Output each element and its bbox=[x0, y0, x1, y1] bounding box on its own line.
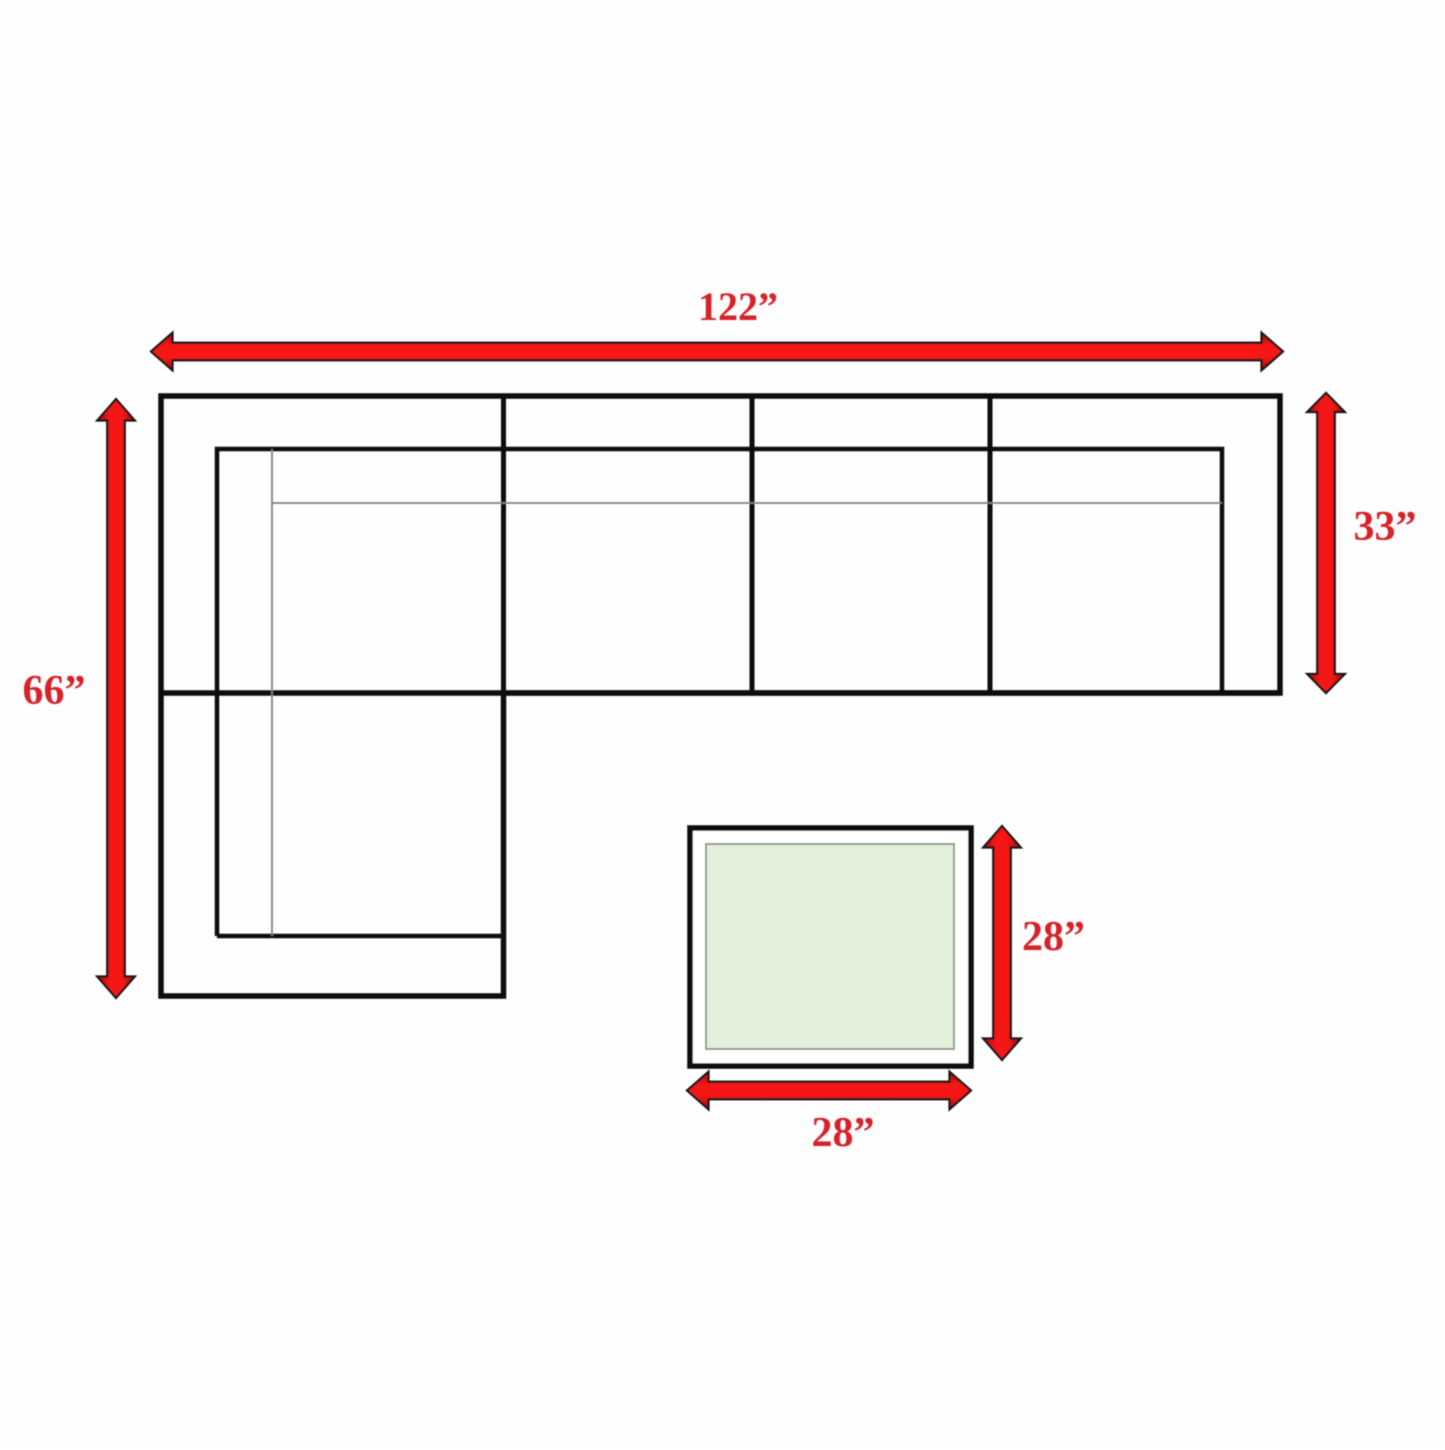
svg-text:33”: 33” bbox=[1354, 504, 1417, 550]
svg-text:66”: 66” bbox=[23, 668, 86, 714]
svg-text:28”: 28” bbox=[1022, 914, 1085, 960]
svg-text:28”: 28” bbox=[812, 1110, 875, 1156]
svg-text:122”: 122” bbox=[698, 284, 778, 329]
